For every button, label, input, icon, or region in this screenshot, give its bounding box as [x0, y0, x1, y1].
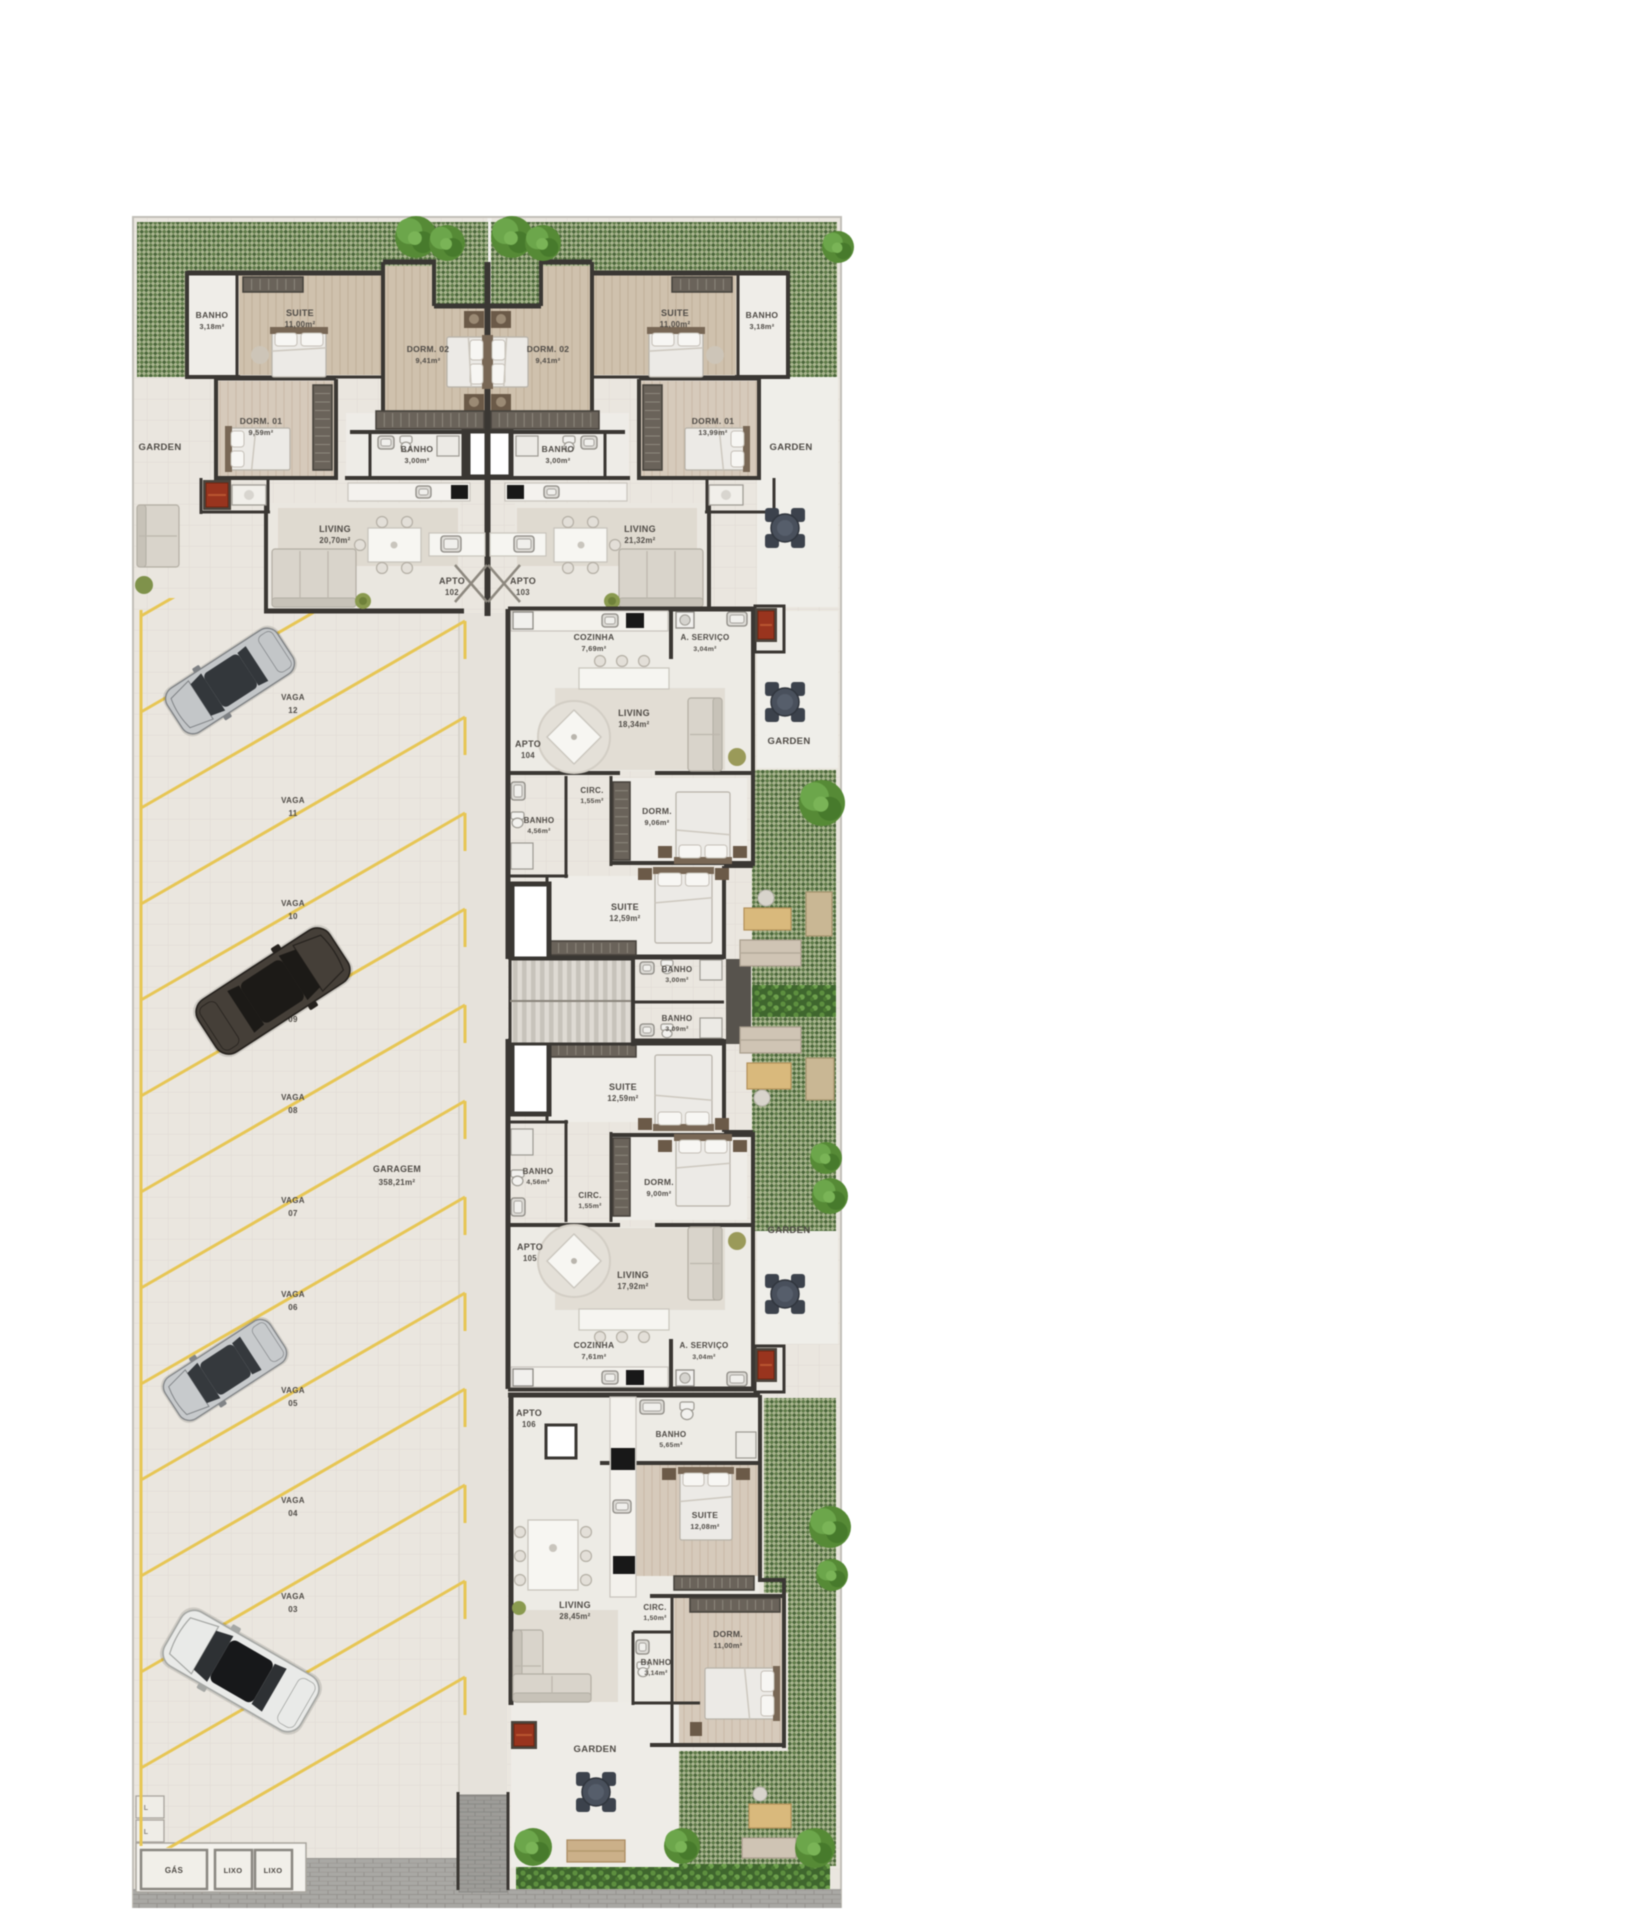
svg-text:11,00m²: 11,00m² [714, 1641, 743, 1650]
svg-text:BANHO: BANHO [196, 310, 229, 320]
svg-text:9,41m²: 9,41m² [536, 356, 561, 365]
svg-text:GARAGEM: GARAGEM [373, 1164, 421, 1174]
svg-text:CIRC.: CIRC. [643, 1603, 666, 1612]
svg-text:BANHO: BANHO [524, 816, 555, 825]
svg-text:17,92m²: 17,92m² [617, 1282, 648, 1291]
svg-text:DORM. 01: DORM. 01 [240, 416, 283, 426]
svg-text:VAGA: VAGA [281, 1496, 305, 1505]
svg-text:3,04m²: 3,04m² [692, 1354, 716, 1361]
svg-text:08: 08 [288, 1106, 298, 1115]
svg-text:COZINHA: COZINHA [574, 1340, 615, 1350]
svg-text:APTO: APTO [515, 739, 541, 749]
svg-text:3,00m²: 3,00m² [665, 977, 689, 984]
svg-text:DORM. 02: DORM. 02 [527, 344, 570, 354]
svg-text:5,65m²: 5,65m² [659, 1442, 683, 1449]
svg-text:28,45m²: 28,45m² [559, 1612, 590, 1621]
svg-text:DORM.: DORM. [713, 1629, 743, 1639]
svg-text:3,09m²: 3,09m² [665, 1026, 689, 1033]
svg-text:APTO: APTO [516, 1408, 542, 1418]
svg-text:CIRC.: CIRC. [580, 786, 603, 795]
svg-text:12,08m²: 12,08m² [690, 1522, 720, 1531]
svg-text:VAGA: VAGA [281, 1093, 305, 1102]
svg-text:05: 05 [288, 1399, 298, 1408]
svg-text:3,18m²: 3,18m² [750, 322, 775, 331]
svg-text:SUITE: SUITE [286, 308, 314, 318]
svg-text:13,99m²: 13,99m² [698, 428, 728, 437]
svg-text:106: 106 [522, 1420, 536, 1429]
svg-text:LIVING: LIVING [319, 524, 351, 534]
svg-text:APTO: APTO [517, 1242, 543, 1252]
svg-text:LIXO: LIXO [224, 1866, 243, 1875]
svg-text:DORM.: DORM. [642, 806, 672, 816]
svg-text:3,14m²: 3,14m² [644, 1670, 668, 1677]
svg-text:3,00m²: 3,00m² [546, 456, 571, 465]
svg-text:GARDEN: GARDEN [770, 442, 813, 453]
svg-text:LIVING: LIVING [559, 1600, 591, 1610]
svg-text:LIXO: LIXO [264, 1866, 283, 1875]
svg-text:COZINHA: COZINHA [574, 632, 615, 642]
svg-text:DORM. 02: DORM. 02 [407, 344, 450, 354]
svg-text:1,50m²: 1,50m² [643, 1615, 667, 1622]
svg-text:12,59m²: 12,59m² [607, 1094, 638, 1103]
svg-text:BANHO: BANHO [662, 1014, 693, 1023]
svg-text:VAGA: VAGA [281, 1196, 305, 1205]
svg-text:VAGA: VAGA [281, 693, 305, 702]
svg-text:9,00m²: 9,00m² [647, 1189, 672, 1198]
svg-text:CIRC.: CIRC. [578, 1191, 601, 1200]
svg-text:12: 12 [288, 706, 298, 715]
svg-text:06: 06 [288, 1303, 298, 1312]
svg-text:11,00m²: 11,00m² [285, 320, 316, 329]
svg-text:BANHO: BANHO [523, 1167, 554, 1176]
svg-text:BANHO: BANHO [746, 310, 779, 320]
svg-text:7,69m²: 7,69m² [582, 644, 607, 653]
svg-text:20,70m²: 20,70m² [319, 536, 350, 545]
svg-text:L: L [144, 1829, 149, 1836]
svg-text:10: 10 [288, 912, 298, 921]
svg-text:VAGA: VAGA [281, 899, 305, 908]
svg-text:104: 104 [521, 751, 535, 760]
svg-text:SUITE: SUITE [611, 902, 639, 912]
svg-text:9,41m²: 9,41m² [416, 356, 441, 365]
svg-text:3,04m²: 3,04m² [693, 646, 717, 653]
svg-text:SUITE: SUITE [609, 1082, 637, 1092]
svg-text:GARDEN: GARDEN [768, 736, 811, 747]
svg-text:358,21m²: 358,21m² [379, 1178, 416, 1187]
svg-text:GÁS: GÁS [165, 1866, 184, 1875]
svg-text:07: 07 [288, 1209, 298, 1218]
svg-text:VAGA: VAGA [281, 1592, 305, 1601]
svg-text:LIVING: LIVING [618, 708, 650, 718]
svg-text:102: 102 [445, 588, 459, 597]
svg-text:BANHO: BANHO [656, 1430, 687, 1439]
svg-text:3,18m²: 3,18m² [200, 322, 225, 331]
svg-text:11,00m²: 11,00m² [660, 320, 691, 329]
svg-text:DORM. 01: DORM. 01 [692, 416, 735, 426]
svg-text:VAGA: VAGA [281, 796, 305, 805]
svg-text:A. SERVIÇO: A. SERVIÇO [680, 633, 729, 642]
svg-text:103: 103 [516, 588, 530, 597]
svg-text:BANHO: BANHO [401, 444, 434, 454]
svg-text:3,00m²: 3,00m² [405, 456, 430, 465]
svg-text:4,56m²: 4,56m² [526, 1179, 550, 1186]
svg-text:1,55m²: 1,55m² [578, 1203, 602, 1210]
svg-text:L: L [144, 1805, 149, 1812]
svg-text:03: 03 [288, 1605, 298, 1614]
svg-text:4,56m²: 4,56m² [527, 828, 551, 835]
svg-text:7,61m²: 7,61m² [582, 1352, 607, 1361]
svg-text:18,34m²: 18,34m² [618, 720, 649, 729]
svg-text:LIVING: LIVING [624, 524, 656, 534]
svg-text:VAGA: VAGA [281, 1386, 305, 1395]
svg-text:SUITE: SUITE [661, 308, 689, 318]
svg-text:105: 105 [523, 1254, 537, 1263]
svg-text:11: 11 [288, 809, 297, 818]
svg-text:GARDEN: GARDEN [574, 1744, 617, 1755]
svg-text:LIVING: LIVING [617, 1270, 649, 1280]
svg-text:SUITE: SUITE [692, 1510, 719, 1520]
svg-text:APTO: APTO [510, 576, 536, 586]
svg-text:BANHO: BANHO [662, 965, 693, 974]
svg-text:BANHO: BANHO [641, 1658, 672, 1667]
svg-text:9,59m²: 9,59m² [249, 428, 274, 437]
svg-text:1,55m²: 1,55m² [580, 798, 604, 805]
svg-text:A. SERVIÇO: A. SERVIÇO [679, 1341, 728, 1350]
svg-text:DORM.: DORM. [644, 1177, 674, 1187]
svg-text:21,32m²: 21,32m² [624, 536, 655, 545]
svg-text:GARDEN: GARDEN [768, 1225, 811, 1236]
svg-text:12,59m²: 12,59m² [609, 914, 640, 923]
svg-text:GARDEN: GARDEN [139, 442, 182, 453]
svg-text:BANHO: BANHO [542, 444, 575, 454]
svg-text:VAGA: VAGA [281, 1290, 305, 1299]
svg-text:9,06m²: 9,06m² [645, 818, 670, 827]
svg-text:APTO: APTO [439, 576, 465, 586]
svg-text:04: 04 [288, 1509, 298, 1518]
